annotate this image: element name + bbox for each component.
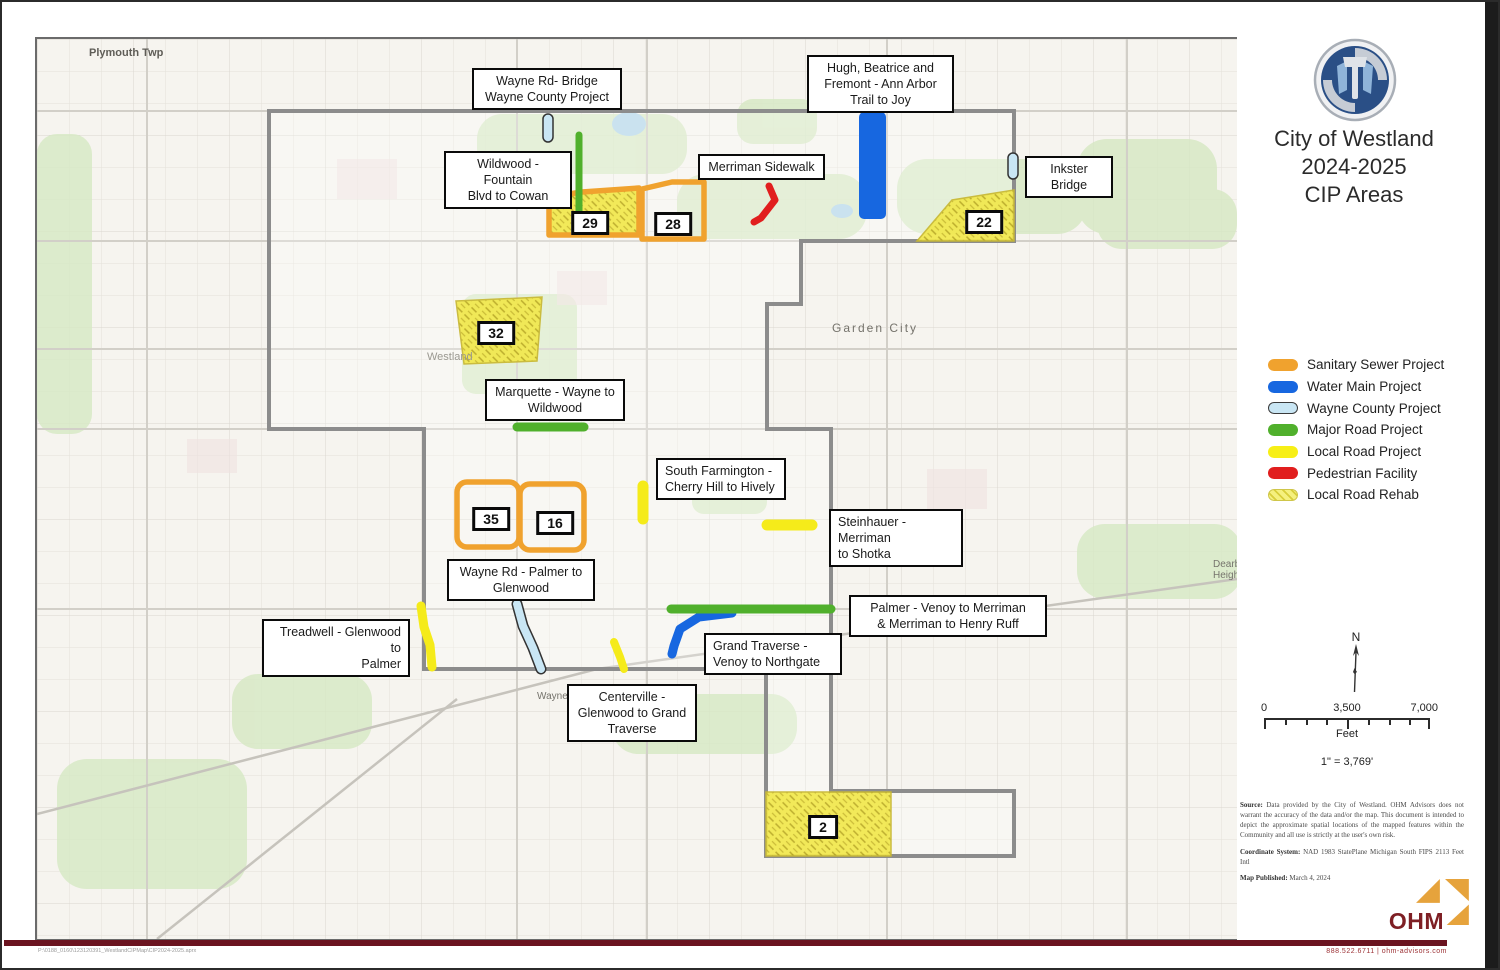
scale-bar: 0 3,500 7,000 Feet 1" = 3,769' bbox=[1264, 702, 1430, 768]
label-marquette[interactable]: Marquette - Wayne to Wildwood bbox=[485, 379, 625, 421]
legend-item-pedestrian: Pedestrian Facility bbox=[1268, 462, 1468, 484]
area-badge-2[interactable]: 2 bbox=[808, 815, 838, 839]
wayne-county-swatch bbox=[1268, 402, 1298, 414]
label-merriman-sidewalk[interactable]: Merriman Sidewalk bbox=[698, 154, 825, 180]
area-badge-32[interactable]: 32 bbox=[477, 321, 515, 345]
scale-tick-mid: 3,500 bbox=[1333, 702, 1361, 714]
place-label-wayne: Wayne bbox=[537, 691, 568, 702]
coordinate-system-note: Coordinate System: NAD 1983 StatePlane M… bbox=[1240, 847, 1464, 867]
legend-item-sanitary-sewer: Sanitary Sewer Project bbox=[1268, 354, 1468, 376]
water-main-hugh[interactable] bbox=[859, 112, 886, 219]
legend-item-major-road: Major Road Project bbox=[1268, 419, 1468, 441]
document-path-text: P:\0188_0160\123120391_WestlandCIPMap\CI… bbox=[38, 948, 196, 954]
legend-item-water-main: Water Main Project bbox=[1268, 376, 1468, 398]
place-label-garden-city: Garden City bbox=[832, 321, 918, 335]
legend-item-wayne-county: Wayne County Project bbox=[1268, 397, 1468, 419]
westland-city-seal bbox=[1313, 38, 1397, 122]
label-steinhauer[interactable]: Steinhauer - Merriman to Shotka bbox=[829, 509, 963, 567]
label-treadwell[interactable]: Treadwell - Glenwood to Palmer bbox=[262, 619, 410, 677]
label-inkster-bridge[interactable]: Inkster Bridge bbox=[1025, 156, 1113, 198]
source-note: Source: Data provided by the City of Wes… bbox=[1240, 800, 1464, 841]
legend-item-local-road: Local Road Project bbox=[1268, 441, 1468, 463]
map-canvas[interactable]: Plymouth Twp Garden City Westland Wayne … bbox=[35, 37, 1239, 941]
local-road-swatch bbox=[1268, 446, 1298, 458]
label-hugh-beatrice[interactable]: Hugh, Beatrice and Fremont - Ann Arbor T… bbox=[807, 55, 954, 113]
map-title-line3: CIP Areas bbox=[1240, 182, 1468, 208]
major-road-swatch bbox=[1268, 424, 1298, 436]
scale-ratio: 1" = 3,769' bbox=[1264, 756, 1430, 768]
local-road-rehab-swatch bbox=[1268, 489, 1298, 501]
area-badge-16[interactable]: 16 bbox=[536, 511, 574, 535]
footer-divider-bar bbox=[4, 940, 1447, 946]
ohm-wordmark: OHM bbox=[1354, 908, 1444, 935]
north-arrow: N bbox=[1342, 630, 1370, 701]
scale-tick-0: 0 bbox=[1261, 702, 1267, 714]
area-badge-35[interactable]: 35 bbox=[472, 507, 510, 531]
label-wayne-rd-palmer[interactable]: Wayne Rd - Palmer to Glenwood bbox=[447, 559, 595, 601]
area-badge-22[interactable]: 22 bbox=[965, 210, 1003, 234]
north-arrow-icon bbox=[1350, 644, 1362, 696]
screen-edge-strip bbox=[1485, 2, 1498, 968]
map-title-line2: 2024-2025 bbox=[1240, 154, 1468, 180]
place-label-westland: Westland bbox=[427, 351, 473, 363]
place-label-plymouth: Plymouth Twp bbox=[89, 47, 163, 59]
water-main-swatch bbox=[1268, 381, 1298, 393]
legend-item-local-road-rehab: Local Road Rehab bbox=[1268, 484, 1468, 506]
label-grand-traverse[interactable]: Grand Traverse - Venoy to Northgate bbox=[704, 633, 842, 675]
scale-tick-end: 7,000 bbox=[1410, 702, 1438, 714]
map-notes: Source: Data provided by the City of Wes… bbox=[1240, 800, 1464, 889]
page: Plymouth Twp Garden City Westland Wayne … bbox=[0, 0, 1500, 970]
label-palmer-venoy[interactable]: Palmer - Venoy to Merriman & Merriman to… bbox=[849, 595, 1047, 637]
scale-bar-line bbox=[1264, 718, 1430, 730]
ohm-contact-text: 888.522.6711 | ohm-advisors.com bbox=[1237, 948, 1447, 955]
area-badge-29[interactable]: 29 bbox=[571, 211, 609, 235]
label-wayne-rd-bridge[interactable]: Wayne Rd- Bridge Wayne County Project bbox=[472, 68, 622, 110]
area-badge-28[interactable]: 28 bbox=[654, 212, 692, 236]
pedestrian-swatch bbox=[1268, 467, 1298, 479]
legend: Sanitary Sewer Project Water Main Projec… bbox=[1268, 354, 1468, 506]
place-label-dearborn-heights: Dearborn Heights bbox=[1213, 559, 1239, 581]
label-centerville[interactable]: Centerville - Glenwood to Grand Traverse bbox=[567, 684, 697, 742]
label-wildwood[interactable]: Wildwood - Fountain Blvd to Cowan bbox=[444, 151, 572, 209]
sanitary-sewer-swatch bbox=[1268, 359, 1298, 371]
map-title-line1: City of Westland bbox=[1240, 126, 1468, 152]
label-south-farmington[interactable]: South Farmington - Cherry Hill to Hively bbox=[656, 458, 786, 500]
